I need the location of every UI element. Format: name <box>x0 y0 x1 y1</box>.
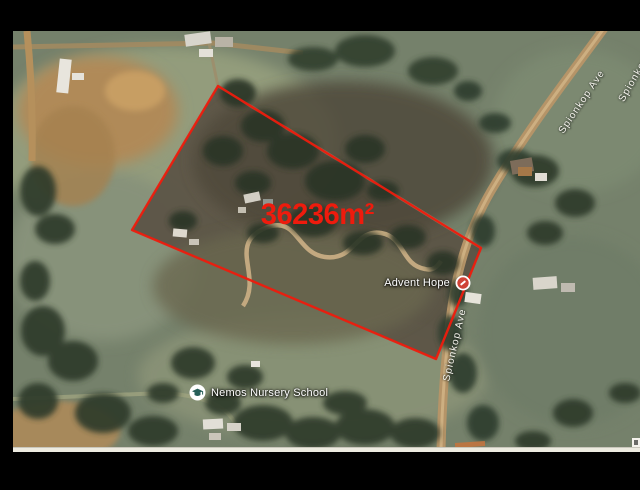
place-advent-hope[interactable]: Advent Hope <box>351 275 471 291</box>
school-graduation-cap-icon[interactable] <box>189 384 206 401</box>
place-label[interactable]: Nemos Nursery School <box>211 387 328 399</box>
parcel-area-label: 36236m² <box>261 200 374 230</box>
screenshot-root: 36236m² Advent Hope Nemos Nursery School… <box>0 0 640 490</box>
place-label[interactable]: Advent Hope <box>384 277 450 289</box>
red-place-pin-icon[interactable] <box>455 275 471 291</box>
satellite-map[interactable]: 36236m² Advent Hope Nemos Nursery School… <box>13 31 640 447</box>
bottom-ui-strip <box>13 447 640 452</box>
place-nemos-nursery-school[interactable]: Nemos Nursery School <box>189 384 328 401</box>
map-watermark <box>632 438 640 447</box>
